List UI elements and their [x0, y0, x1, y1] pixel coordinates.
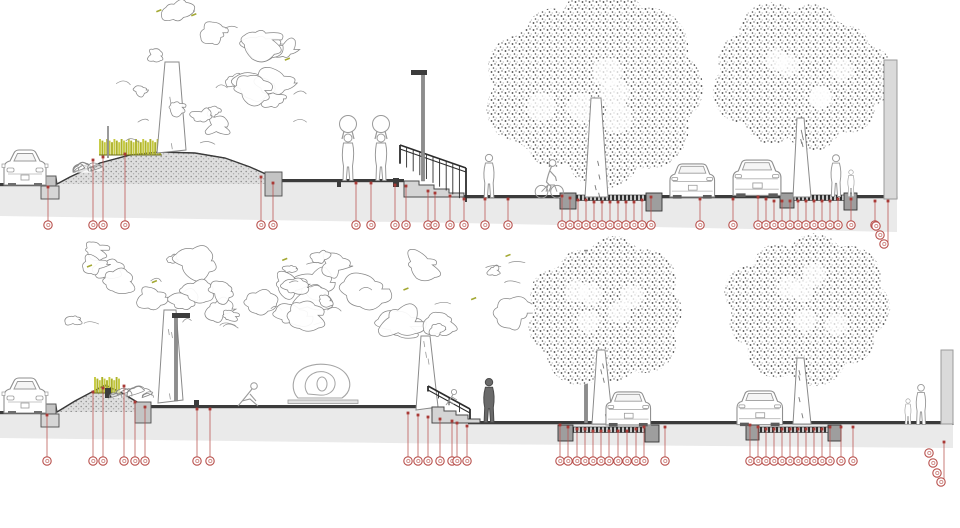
parked-car	[606, 392, 651, 426]
parked-car	[2, 150, 48, 186]
park-tree	[116, 0, 307, 153]
pedestrian	[484, 154, 494, 197]
lower-walkway-surface	[468, 421, 941, 425]
tree-pit-grating	[759, 427, 828, 433]
bollard	[337, 180, 341, 187]
sculpture-plinth	[288, 400, 358, 404]
street-tree	[529, 236, 682, 424]
retaining-block	[135, 402, 151, 423]
statue-figure	[484, 379, 494, 423]
parked-car	[733, 160, 781, 197]
tree-pit-block	[646, 193, 662, 211]
bollard	[194, 400, 199, 408]
abstract-sculpture	[293, 364, 350, 398]
curb-block	[45, 404, 56, 414]
tree-pit-block	[645, 425, 659, 442]
parked-car	[670, 164, 715, 198]
section-2	[0, 233, 953, 486]
pedestrian-child	[905, 399, 911, 425]
stairs	[404, 181, 464, 197]
curb-footing	[41, 414, 59, 427]
upper-walkway-surface	[151, 405, 432, 409]
section-drawing-canvas	[0, 0, 960, 528]
marker-post	[105, 388, 111, 398]
person-sitting	[238, 383, 258, 406]
parked-car	[737, 391, 783, 426]
person-with-ball	[373, 116, 390, 181]
building-wall	[941, 350, 953, 424]
street-section-drawing	[0, 0, 960, 528]
street-tree	[487, 0, 704, 198]
curb-block	[45, 176, 56, 186]
pedestrian-adult	[831, 155, 841, 197]
section-1	[0, 0, 897, 248]
curb-footing	[41, 186, 59, 199]
steps	[432, 407, 480, 423]
parked-car	[2, 378, 48, 414]
pedestrian-adult	[916, 384, 925, 424]
building-wall	[884, 60, 897, 199]
person-with-ball	[340, 116, 357, 181]
